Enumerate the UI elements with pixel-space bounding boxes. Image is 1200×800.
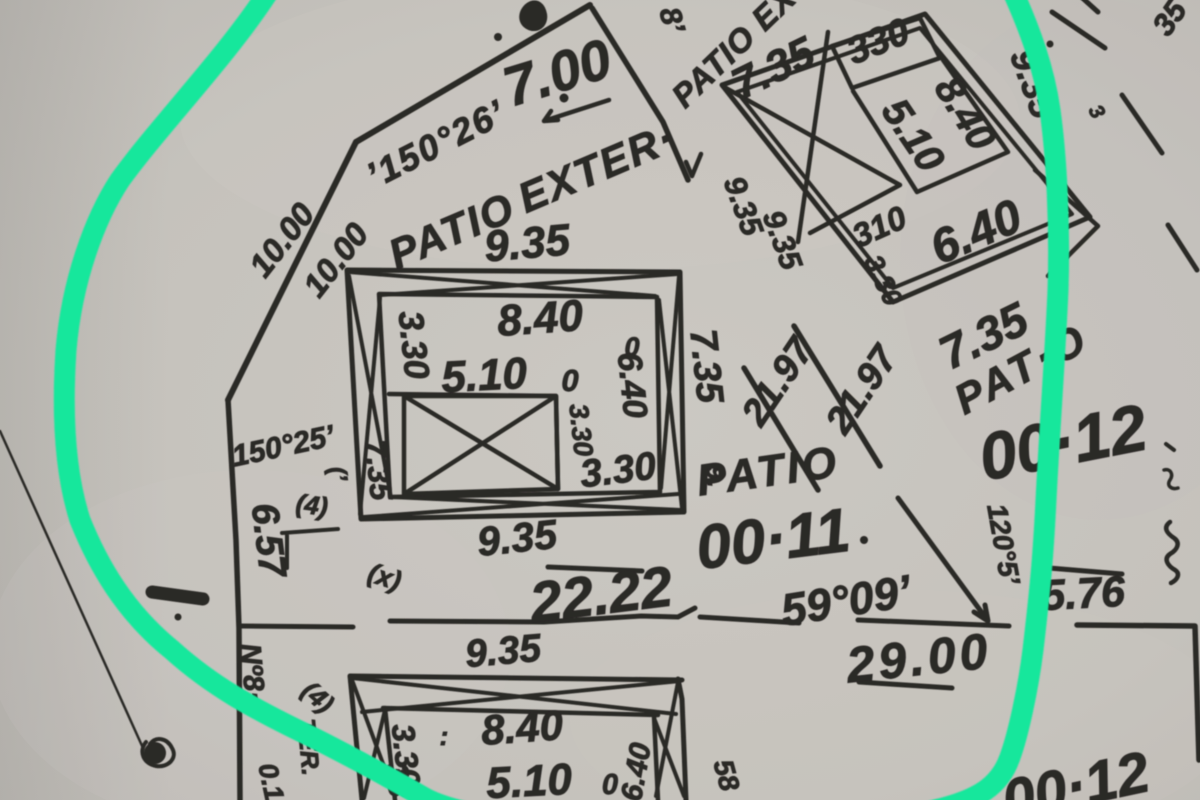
svg-text:5.10: 5.10 — [440, 349, 529, 402]
svg-text:(4): (4) — [294, 488, 330, 522]
svg-text:9.35: 9.35 — [475, 511, 560, 565]
svg-text:8.40: 8.40 — [496, 291, 585, 346]
svg-text:5.76: 5.76 — [1040, 568, 1127, 620]
svg-text:3.30: 3.30 — [391, 309, 437, 381]
svg-text:7.35: 7.35 — [358, 438, 399, 502]
svg-text:6.40: 6.40 — [610, 350, 655, 420]
svg-text:5.10: 5.10 — [485, 755, 574, 800]
svg-text::: : — [440, 721, 449, 751]
svg-text:0: 0 — [561, 363, 578, 398]
svg-text:9.35: 9.35 — [463, 627, 544, 677]
svg-text:8.40: 8.40 — [480, 701, 565, 754]
svg-text:3.30: 3.30 — [563, 402, 598, 457]
svg-text:7.35: 7.35 — [681, 327, 731, 406]
svg-text:9.35: 9.35 — [482, 215, 572, 271]
